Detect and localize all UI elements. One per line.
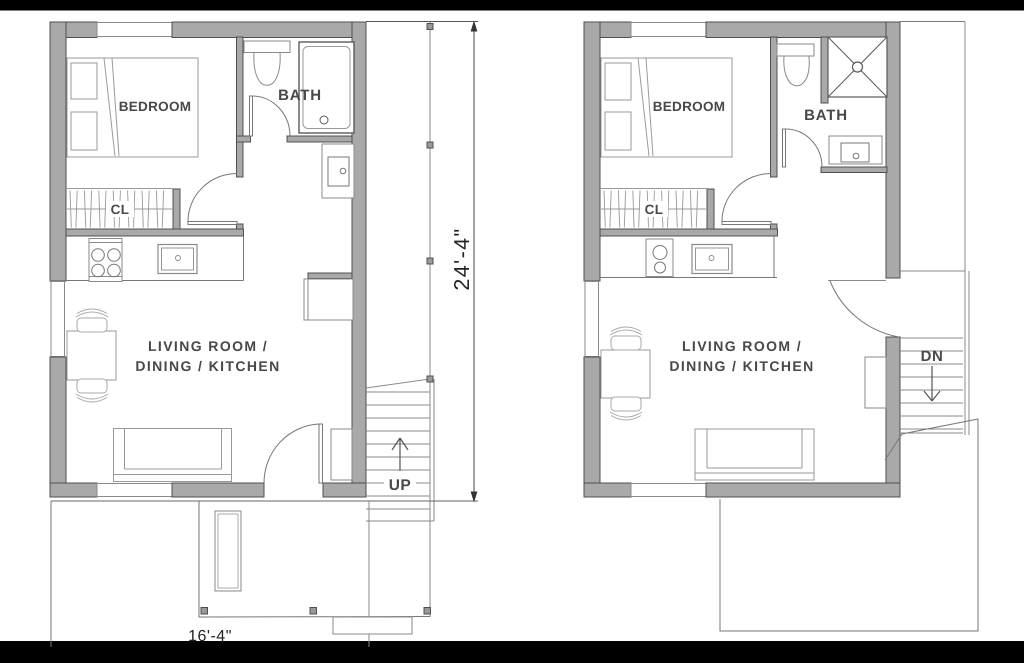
svg-text:CL: CL	[645, 202, 664, 217]
svg-text:DN: DN	[921, 348, 944, 365]
svg-text:UP: UP	[389, 477, 412, 494]
svg-text:DINING / KITCHEN: DINING / KITCHEN	[135, 358, 280, 374]
svg-text:BATH: BATH	[278, 87, 322, 104]
svg-text:DINING / KITCHEN: DINING / KITCHEN	[669, 358, 814, 374]
svg-text:CL: CL	[111, 202, 130, 217]
svg-text:LIVING ROOM /: LIVING ROOM /	[148, 338, 268, 354]
svg-text:16'-4": 16'-4"	[188, 628, 232, 645]
svg-text:BEDROOM: BEDROOM	[653, 99, 726, 114]
svg-text:BEDROOM: BEDROOM	[119, 99, 192, 114]
svg-text:BATH: BATH	[804, 107, 848, 124]
svg-text:LIVING ROOM /: LIVING ROOM /	[682, 338, 802, 354]
svg-text:24'-4": 24'-4"	[450, 227, 474, 290]
